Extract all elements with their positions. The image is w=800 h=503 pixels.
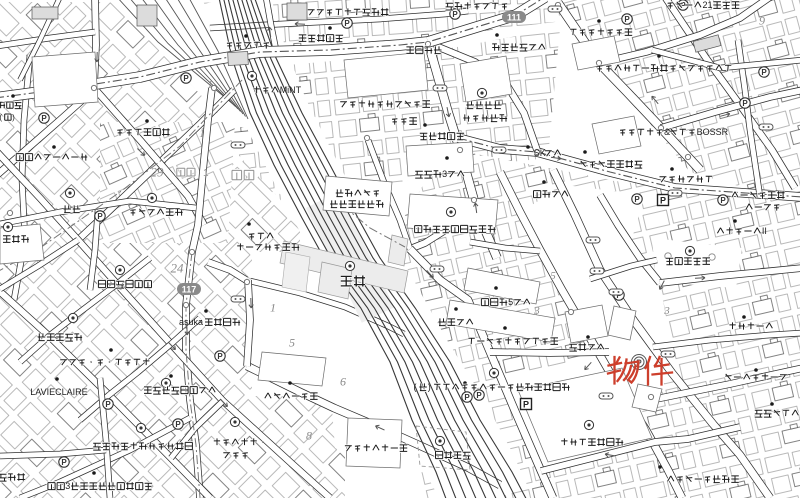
svg-text:P: P	[183, 74, 189, 83]
svg-text:1: 1	[270, 300, 276, 314]
svg-text:3: 3	[65, 481, 70, 491]
svg-text:P: P	[464, 393, 470, 402]
svg-text:1: 1	[207, 79, 213, 91]
svg-text:(: (	[0, 113, 2, 122]
svg-text:1: 1	[199, 128, 205, 140]
svg-text:1: 1	[203, 168, 209, 179]
svg-text:21: 21	[703, 0, 713, 10]
svg-text:3: 3	[533, 305, 540, 317]
svg-text:5: 5	[289, 335, 295, 349]
svg-text:5: 5	[508, 297, 513, 307]
svg-text:P: P	[523, 400, 529, 410]
svg-text:9: 9	[759, 13, 765, 27]
svg-text:29: 29	[151, 165, 165, 180]
svg-text:II: II	[762, 226, 767, 236]
svg-text:111: 111	[507, 13, 521, 23]
svg-text:(: (	[414, 382, 417, 392]
svg-text:P: P	[344, 19, 350, 28]
svg-text:3: 3	[442, 169, 447, 179]
svg-text:P: P	[660, 196, 666, 206]
svg-text:P: P	[41, 114, 47, 123]
svg-text:LAVIECLAIRE: LAVIECLAIRE	[30, 387, 87, 397]
svg-text:P: P	[476, 391, 482, 400]
svg-text:24: 24	[171, 261, 185, 276]
svg-text:&: &	[664, 127, 670, 137]
svg-text:6: 6	[340, 374, 346, 388]
svg-text:117: 117	[182, 285, 197, 295]
svg-text:P: P	[61, 458, 67, 467]
svg-text:P: P	[720, 196, 726, 205]
svg-text:8: 8	[306, 428, 312, 442]
svg-text:P: P	[217, 352, 223, 361]
svg-text:BOSSR: BOSSR	[697, 127, 729, 137]
svg-text:P: P	[624, 15, 630, 24]
svg-text:asuka: asuka	[179, 317, 203, 327]
svg-text:): )	[12, 113, 15, 122]
svg-text:SK: SK	[534, 148, 546, 158]
svg-text:P: P	[97, 212, 103, 221]
svg-text:P: P	[634, 195, 640, 204]
svg-text:3: 3	[663, 305, 670, 317]
svg-text:P: P	[175, 420, 181, 429]
svg-text:P: P	[761, 68, 767, 77]
svg-text:P: P	[452, 10, 458, 19]
svg-text:5: 5	[550, 270, 556, 282]
svg-text:P: P	[742, 99, 748, 108]
svg-text:P: P	[105, 400, 111, 409]
svg-text:MiNT: MiNT	[280, 85, 302, 95]
svg-text:): )	[428, 382, 431, 392]
